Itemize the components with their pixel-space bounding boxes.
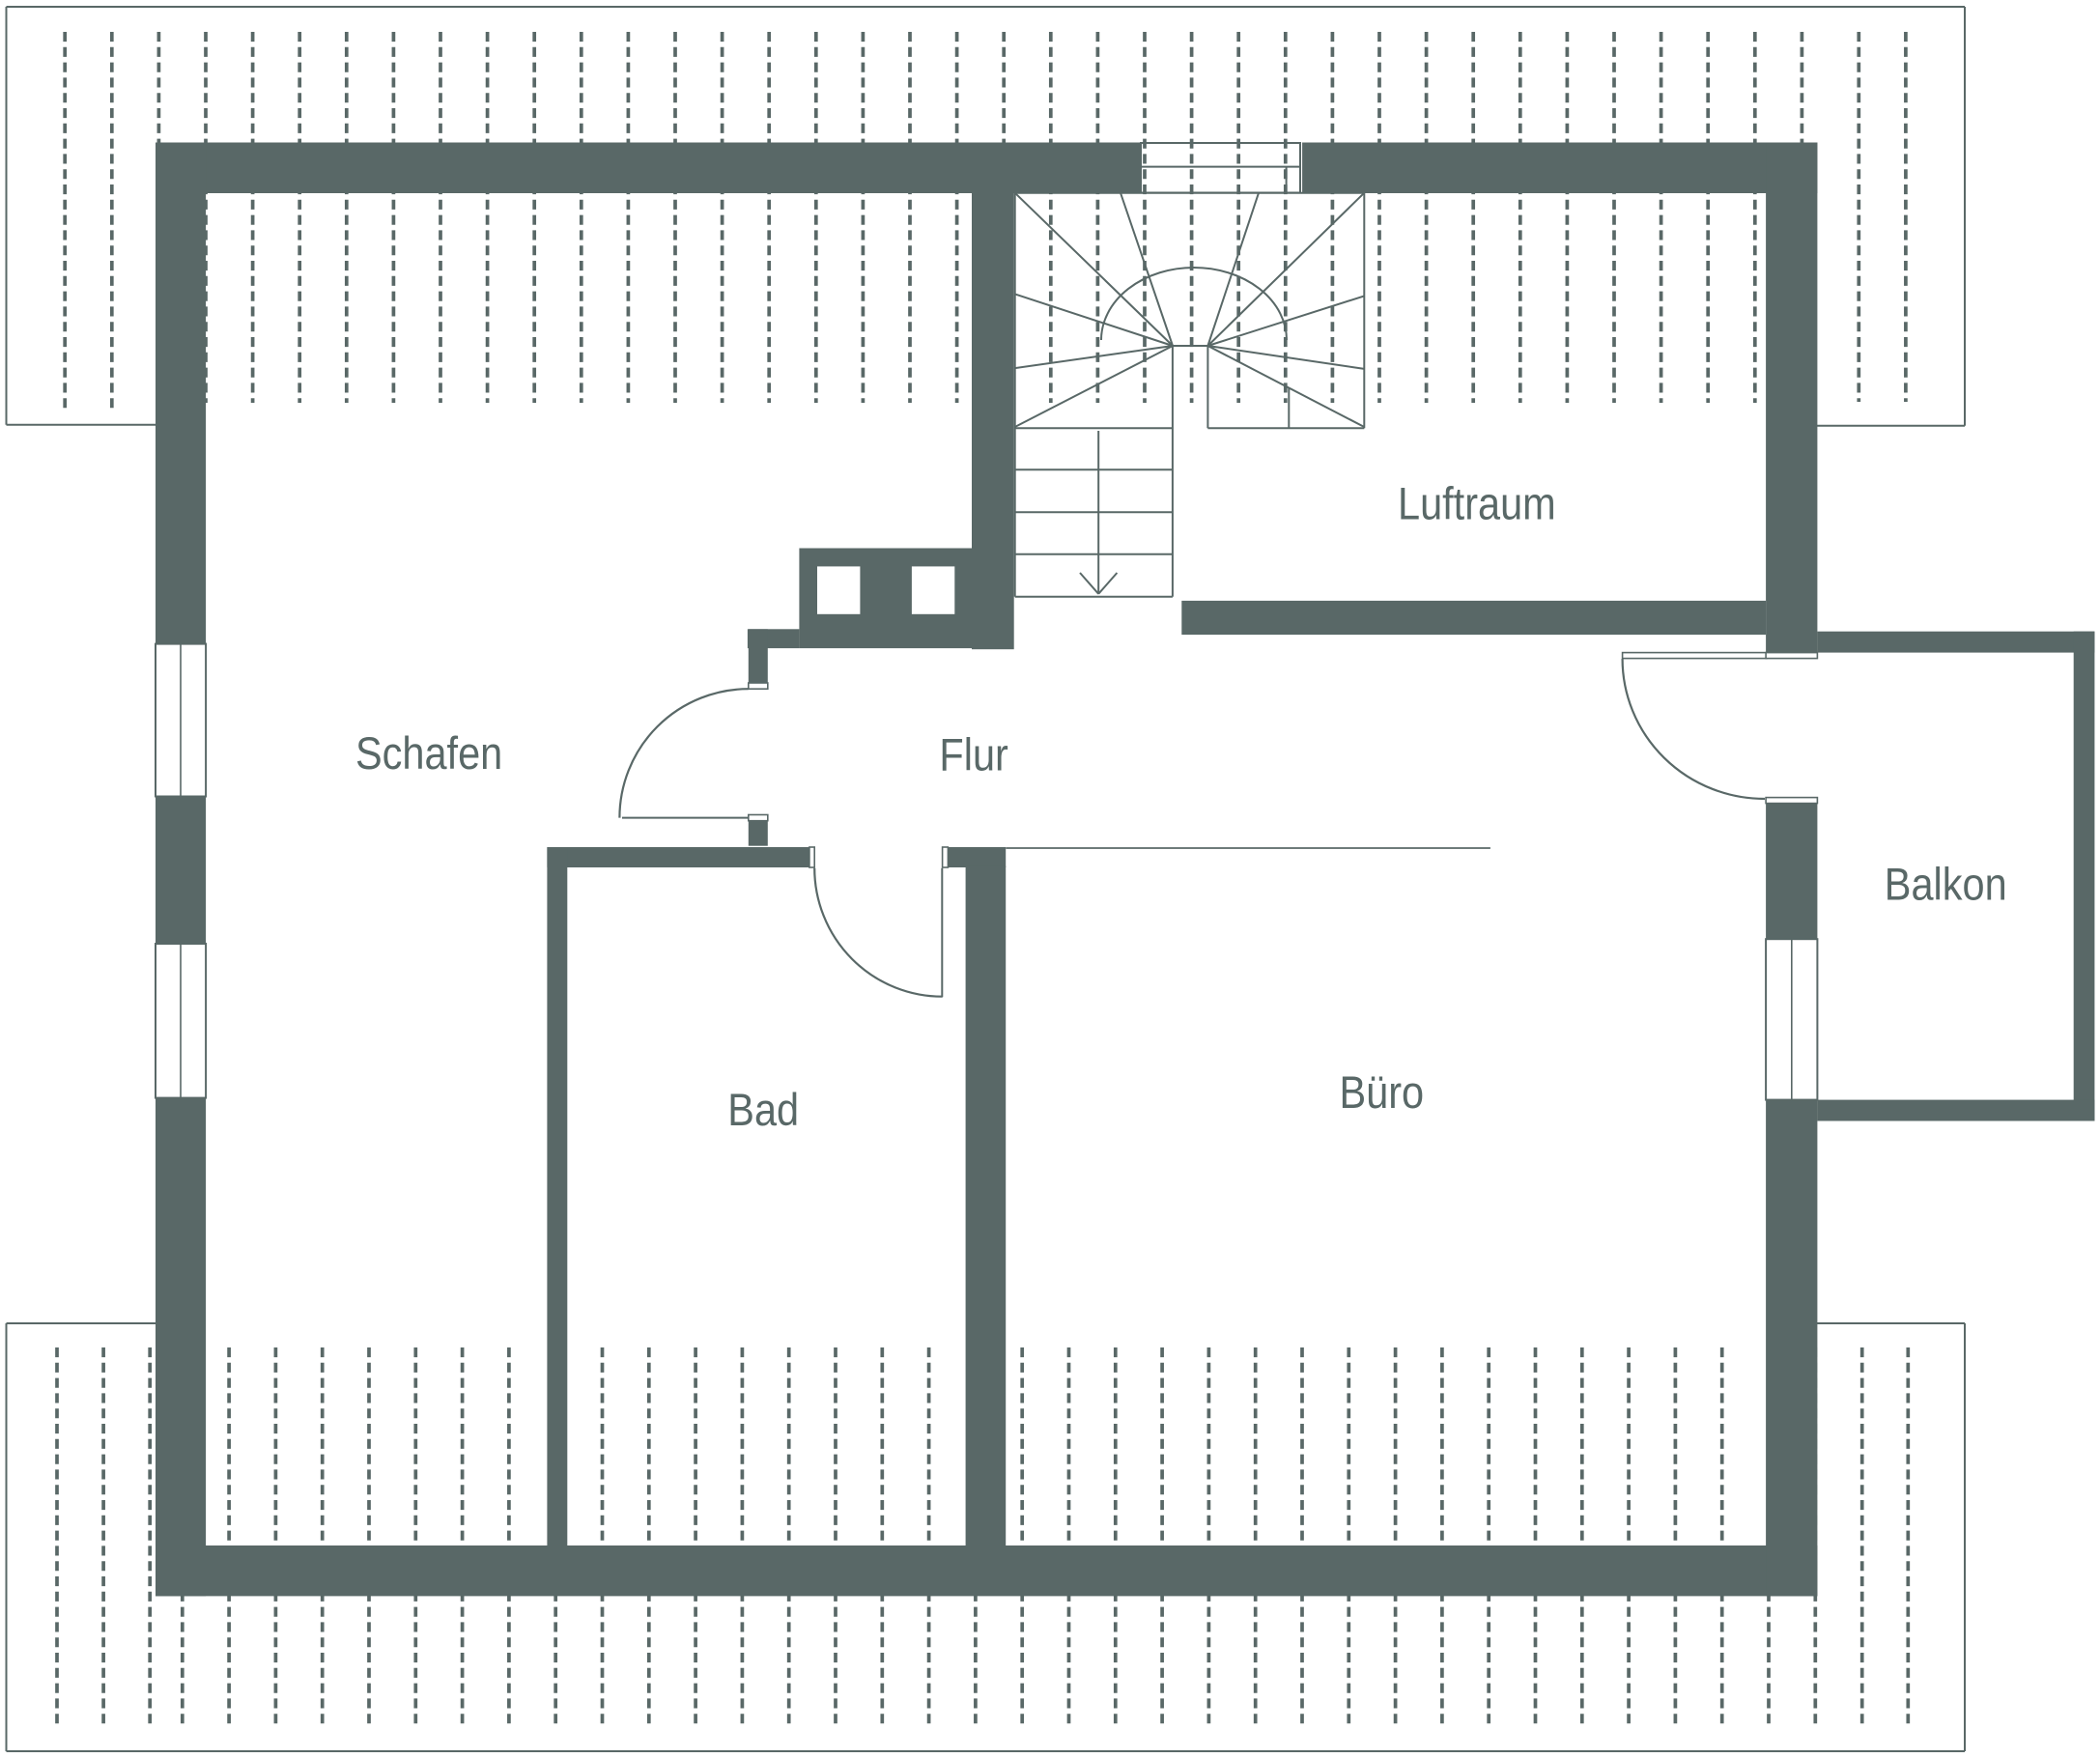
svg-text:Balkon: Balkon: [1885, 860, 2007, 910]
svg-text:Luftraum: Luftraum: [1398, 479, 1556, 529]
svg-text:Bad: Bad: [727, 1086, 799, 1136]
svg-text:Flur: Flur: [939, 730, 1007, 780]
svg-text:Schafen: Schafen: [355, 729, 502, 780]
svg-text:Büro: Büro: [1340, 1068, 1425, 1119]
